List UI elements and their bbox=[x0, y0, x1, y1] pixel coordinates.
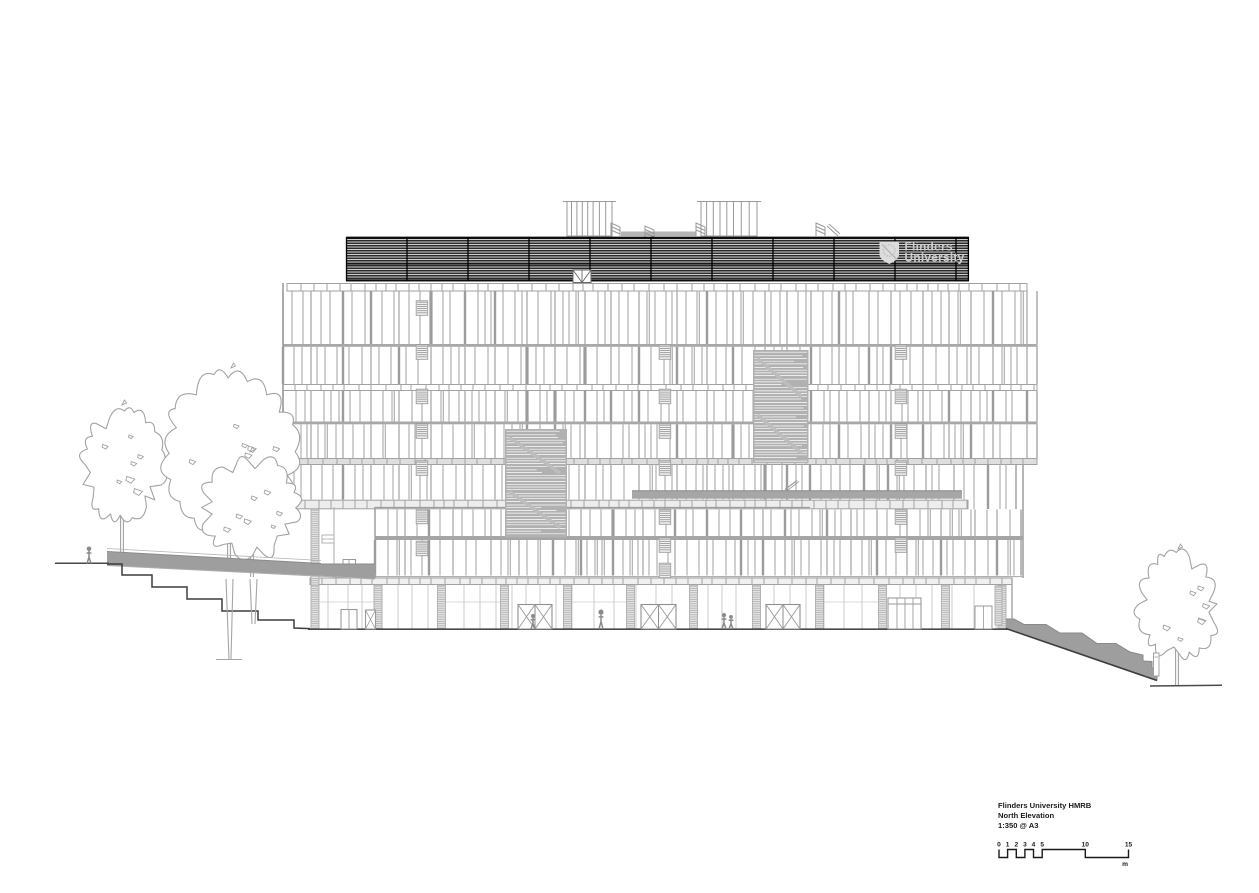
svg-text:Flinders University HMRB: Flinders University HMRB bbox=[998, 801, 1092, 810]
svg-text:10: 10 bbox=[1082, 842, 1090, 849]
svg-text:15: 15 bbox=[1125, 842, 1133, 849]
svg-text:4: 4 bbox=[1032, 842, 1036, 849]
svg-text:North Elevation: North Elevation bbox=[998, 811, 1054, 820]
svg-text:University: University bbox=[905, 251, 965, 265]
svg-text:1: 1 bbox=[1006, 842, 1010, 849]
svg-text:0: 0 bbox=[997, 842, 1001, 849]
svg-text:1:350 @ A3: 1:350 @ A3 bbox=[998, 821, 1038, 830]
svg-text:5: 5 bbox=[1040, 842, 1044, 849]
svg-text:2: 2 bbox=[1014, 842, 1018, 849]
svg-text:3: 3 bbox=[1023, 842, 1027, 849]
svg-text:m: m bbox=[1122, 861, 1128, 868]
